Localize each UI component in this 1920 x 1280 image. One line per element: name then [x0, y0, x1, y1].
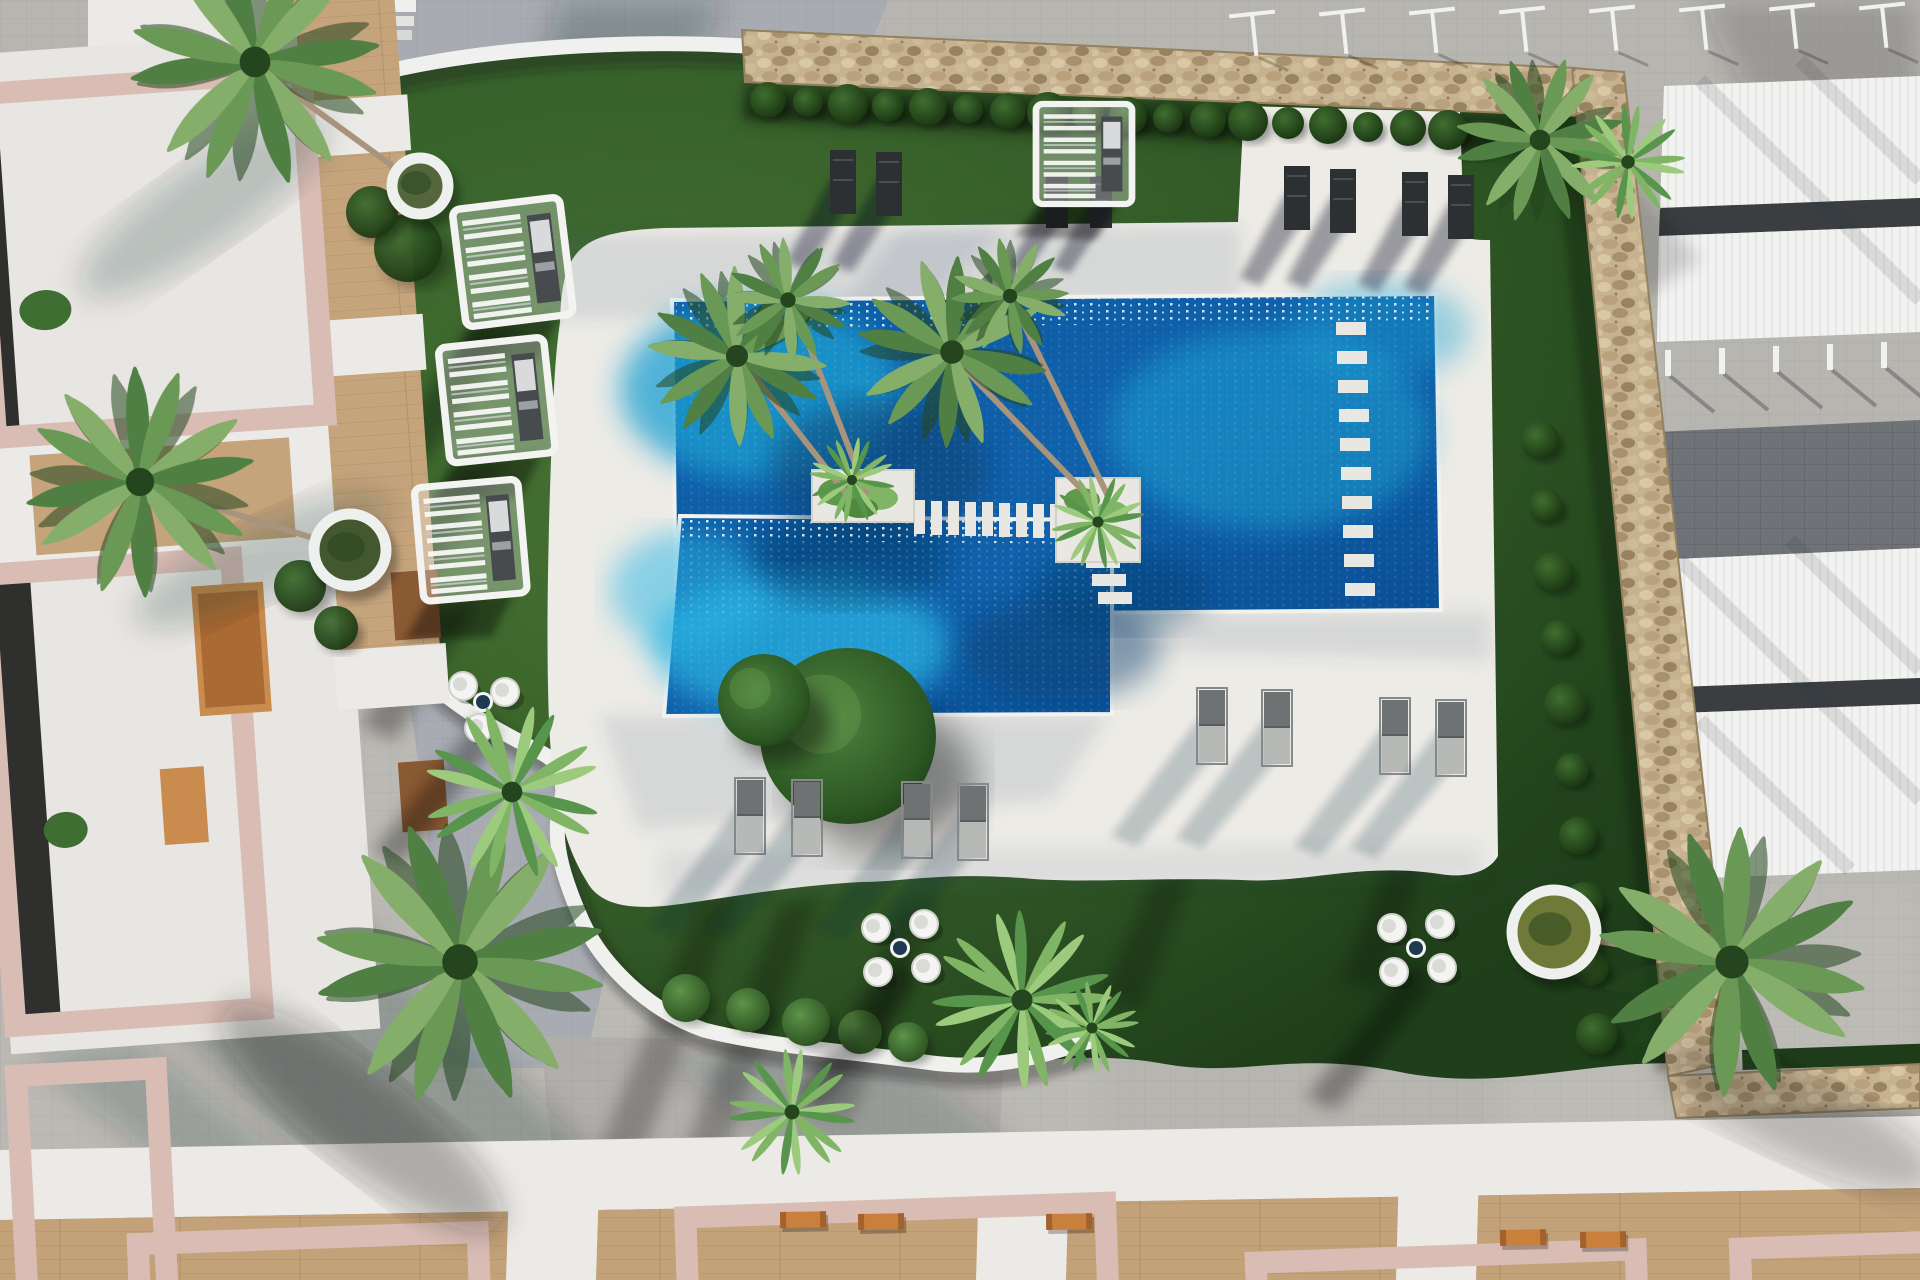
- dark-roof: [1653, 420, 1920, 560]
- aerial-pool-render: Aerial top-down 3D architectural renderi…: [0, 0, 1920, 1280]
- bench: [780, 1211, 828, 1232]
- bench: [1500, 1229, 1548, 1250]
- bench: [1580, 1231, 1628, 1252]
- bench: [858, 1213, 906, 1234]
- render-canvas: [0, 0, 1920, 1280]
- stepping-planks: [914, 500, 1061, 538]
- bench: [1046, 1213, 1094, 1234]
